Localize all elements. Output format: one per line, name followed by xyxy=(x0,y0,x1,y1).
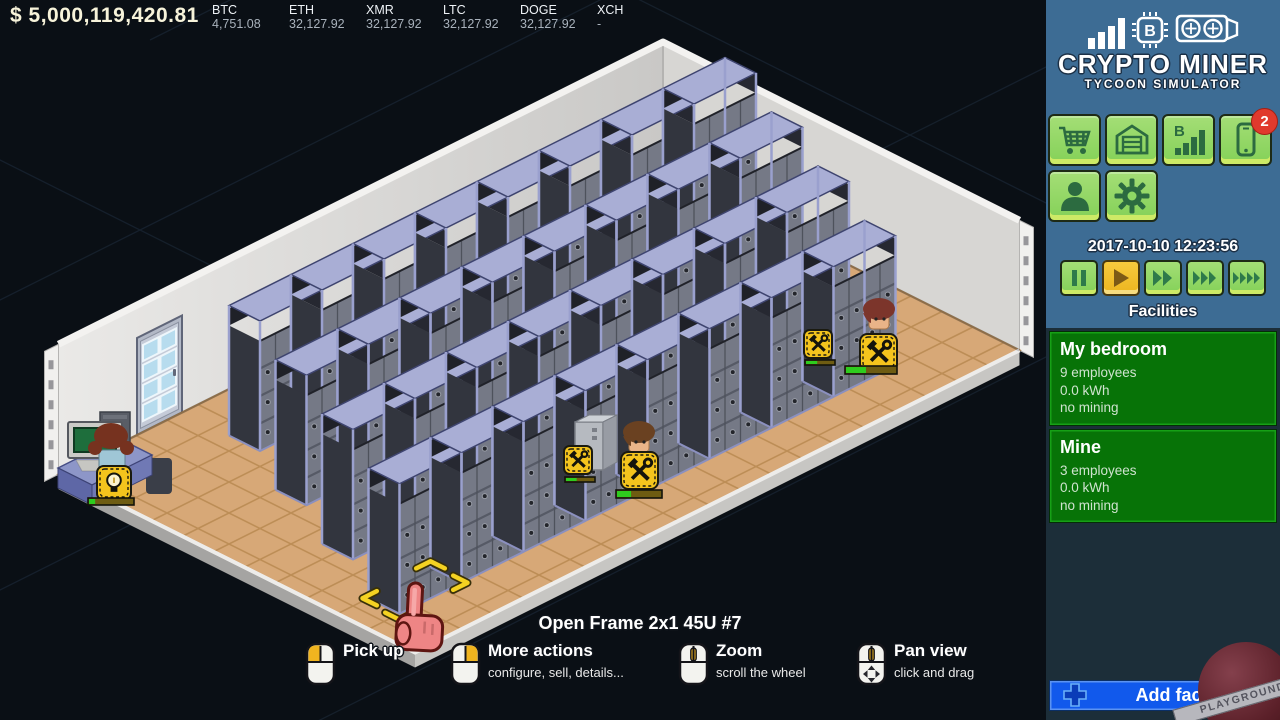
sidebar-menu: B 2 xyxy=(1048,114,1278,222)
legend-item: More actionsconfigure, sell, details... xyxy=(450,641,624,687)
person-icon xyxy=(1056,177,1094,215)
market-button[interactable]: B xyxy=(1162,114,1215,166)
facility-card[interactable]: My bedroom 9 employees 0.0 kWh no mining xyxy=(1049,331,1277,426)
facilities-panel: My bedroom 9 employees 0.0 kWh no mining… xyxy=(1046,328,1280,720)
gpu-icon xyxy=(1175,13,1239,49)
repair-task-icon xyxy=(804,330,832,358)
progress-bar xyxy=(805,360,835,365)
fast-forward-2-button[interactable] xyxy=(1144,260,1182,296)
legend-subtitle: scroll the wheel xyxy=(716,664,806,681)
mouse-right-icon xyxy=(450,641,481,687)
fast-forward-2-icon xyxy=(1152,268,1174,288)
legend-subtitle: configure, sell, details... xyxy=(488,664,624,681)
bars-icon xyxy=(1088,18,1125,49)
mouse-left-icon xyxy=(305,641,336,687)
play-button[interactable] xyxy=(1102,260,1140,296)
crypto-miner-app: Open Frame 2x1 45U #7 Pick upMore action… xyxy=(0,0,1280,720)
shop-button[interactable] xyxy=(1048,114,1101,166)
speed-controls xyxy=(1046,260,1280,296)
facility-mining: no mining xyxy=(1060,497,1266,515)
facility-power: 0.0 kWh xyxy=(1060,479,1266,497)
settings-button[interactable] xyxy=(1105,170,1158,222)
facility-employees: 3 employees xyxy=(1060,462,1266,480)
ticker-value: - xyxy=(597,17,674,31)
fast-forward-3-icon xyxy=(1192,268,1218,288)
facility-name: Mine xyxy=(1060,437,1266,458)
ticker-value: 32,127.92 xyxy=(520,17,597,31)
crypto-tickers: BTC4,751.08ETH32,127.92XMR32,127.92LTC32… xyxy=(212,3,674,31)
garage-button[interactable] xyxy=(1105,114,1158,166)
ticker-value: 32,127.92 xyxy=(443,17,520,31)
add-facility-button[interactable]: Add facility xyxy=(1049,680,1277,711)
cart-icon xyxy=(1056,121,1094,159)
gear-icon xyxy=(1113,177,1151,215)
staff-button[interactable] xyxy=(1048,170,1101,222)
progress-bar xyxy=(565,477,595,482)
logo-icons: B xyxy=(1088,9,1239,49)
logo-title: CRYPTO MINER xyxy=(1058,51,1268,77)
legend-item: Zoomscroll the wheel xyxy=(678,641,806,687)
progress-bar xyxy=(845,366,897,374)
legend-title: More actions xyxy=(488,641,624,661)
sidebar: B CRYPTO MINER TYCOON SIMULATOR xyxy=(1046,0,1280,720)
legend-item: Pan viewclick and drag xyxy=(856,641,974,687)
fast-forward-4-icon xyxy=(1232,268,1262,288)
notification-badge: 2 xyxy=(1251,108,1278,135)
pause-icon xyxy=(1069,268,1089,288)
scene-canvas[interactable] xyxy=(0,0,1046,720)
svg-text:B: B xyxy=(1144,23,1156,40)
play-icon xyxy=(1111,268,1131,288)
pause-button[interactable] xyxy=(1060,260,1098,296)
legend-item: Pick up xyxy=(305,641,403,687)
progress-bar xyxy=(616,490,662,498)
ticker: DOGE32,127.92 xyxy=(520,3,597,31)
scene-wrap: Open Frame 2x1 45U #7 Pick upMore action… xyxy=(0,0,1046,720)
ticker: XCH- xyxy=(597,3,674,31)
hover-tooltip: Open Frame 2x1 45U #7 xyxy=(538,613,741,634)
legend-subtitle: click and drag xyxy=(894,664,974,681)
mouse-controls-legend: Pick upMore actionsconfigure, sell, deta… xyxy=(0,641,1046,701)
game-datetime: 2017-10-10 12:23:56 xyxy=(1046,238,1280,256)
legend-title: Pan view xyxy=(894,641,974,661)
ticker: LTC32,127.92 xyxy=(443,3,520,31)
facility-mining: no mining xyxy=(1060,399,1266,417)
phone-button[interactable]: 2 xyxy=(1219,114,1272,166)
money-balance: $ 5,000,119,420.81 xyxy=(10,4,199,28)
ticker: BTC4,751.08 xyxy=(212,3,289,31)
facility-employees: 9 employees xyxy=(1060,364,1266,382)
bitcoin-chip-icon: B xyxy=(1131,11,1169,49)
repair-task-icon xyxy=(621,452,658,489)
legend-title: Pick up xyxy=(343,641,403,661)
ticker-symbol: XMR xyxy=(366,3,443,17)
plus-icon xyxy=(1058,682,1092,710)
ticker-symbol: LTC xyxy=(443,3,520,17)
ticker: XMR32,127.92 xyxy=(366,3,443,31)
progress-bar xyxy=(88,498,134,505)
ticker-symbol: ETH xyxy=(289,3,366,17)
ticker-value: 32,127.92 xyxy=(289,17,366,31)
facility-name: My bedroom xyxy=(1060,339,1266,360)
repair-task-icon xyxy=(564,446,592,474)
facility-power: 0.0 kWh xyxy=(1060,382,1266,400)
facility-card[interactable]: Mine 3 employees 0.0 kWh no mining xyxy=(1049,429,1277,524)
fast-forward-3-button[interactable] xyxy=(1186,260,1224,296)
facilities-title: Facilities xyxy=(1046,303,1280,321)
ticker-symbol: BTC xyxy=(212,3,289,17)
mouse-pan-icon xyxy=(856,641,887,687)
ticker-value: 4,751.08 xyxy=(212,17,289,31)
ticker-value: 32,127.92 xyxy=(366,17,443,31)
game-logo: B CRYPTO MINER TYCOON SIMULATOR xyxy=(1046,0,1280,91)
svg-text:B: B xyxy=(1174,123,1185,140)
fast-forward-4-button[interactable] xyxy=(1228,260,1266,296)
garage-icon xyxy=(1113,121,1151,159)
ticker-symbol: DOGE xyxy=(520,3,597,17)
top-bar: $ 5,000,119,420.81 BTC4,751.08ETH32,127.… xyxy=(0,0,1046,36)
ticker: ETH32,127.92 xyxy=(289,3,366,31)
idea-icon xyxy=(97,466,131,500)
market-chart-icon: B xyxy=(1170,121,1208,159)
mouse-wheel-icon xyxy=(678,641,709,687)
add-facility-label: Add facility xyxy=(1092,685,1276,706)
logo-subtitle: TYCOON SIMULATOR xyxy=(1085,77,1242,91)
ticker-symbol: XCH xyxy=(597,3,674,17)
legend-title: Zoom xyxy=(716,641,806,661)
